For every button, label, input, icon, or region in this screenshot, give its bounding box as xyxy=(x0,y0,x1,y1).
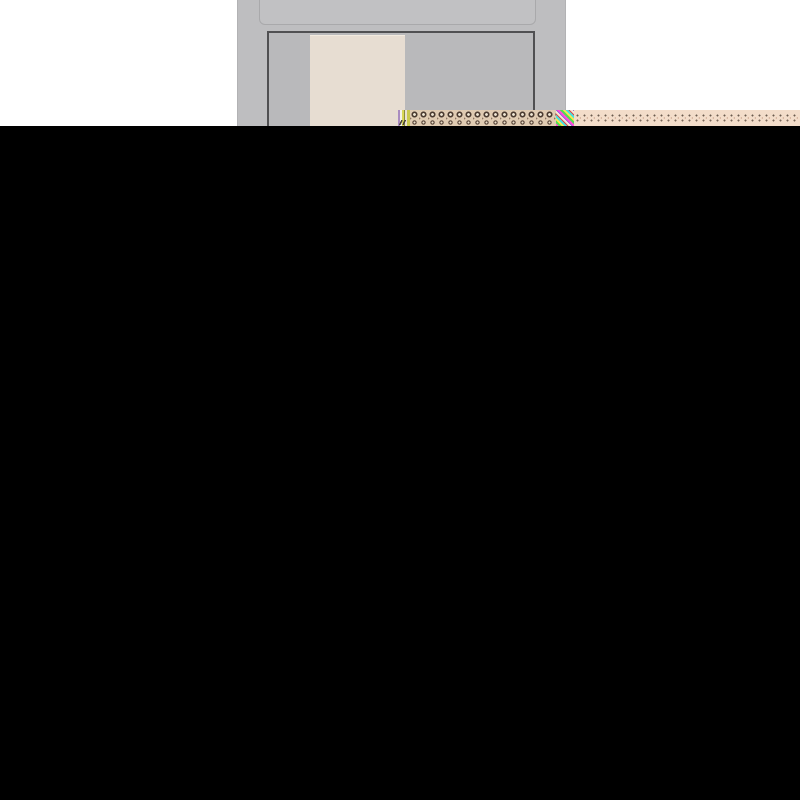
document-canvas[interactable] xyxy=(310,35,405,128)
glitch-vertical-lines xyxy=(398,110,410,126)
screen-root xyxy=(0,0,800,800)
app-window[interactable] xyxy=(237,0,566,126)
glitch-color-noise xyxy=(556,110,574,126)
black-unrendered-region xyxy=(0,126,800,800)
glitch-dot-pattern xyxy=(574,110,800,126)
window-titlebar[interactable] xyxy=(259,0,536,25)
glitch-artifact-strip xyxy=(398,110,800,126)
glitch-knot-pattern xyxy=(410,110,556,126)
